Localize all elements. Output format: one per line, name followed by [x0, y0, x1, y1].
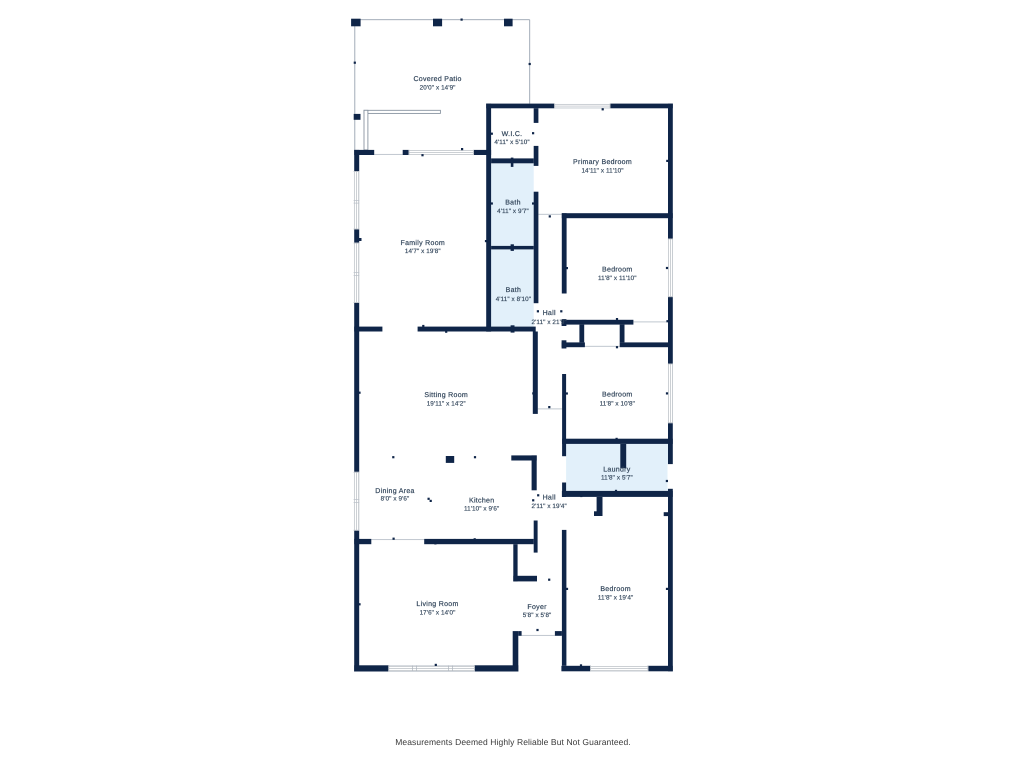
- svg-text:14'11" x 11'10": 14'11" x 11'10": [581, 167, 623, 174]
- svg-text:19'11" x 14'2": 19'11" x 14'2": [427, 401, 466, 408]
- svg-text:4'11" x 9'7": 4'11" x 9'7": [497, 208, 529, 215]
- svg-text:Laundry: Laundry: [603, 466, 631, 474]
- svg-text:5'8" x 5'8": 5'8" x 5'8": [523, 612, 552, 619]
- svg-text:4'11" x 8'10": 4'11" x 8'10": [496, 296, 531, 303]
- svg-text:17'6" x 14'0": 17'6" x 14'0": [420, 609, 456, 616]
- svg-text:Bath: Bath: [505, 199, 521, 207]
- svg-text:Bedroom: Bedroom: [602, 266, 633, 274]
- svg-text:Kitchen: Kitchen: [469, 496, 494, 504]
- svg-text:Bedroom: Bedroom: [600, 585, 631, 593]
- svg-text:Hall: Hall: [543, 309, 556, 317]
- svg-text:20'0" x 14'9": 20'0" x 14'9": [420, 84, 456, 91]
- svg-text:11'8" x 11'10": 11'8" x 11'10": [598, 275, 637, 282]
- svg-text:2'11" x 21'9": 2'11" x 21'9": [532, 319, 567, 326]
- svg-text:11'8" x 19'4": 11'8" x 19'4": [598, 595, 633, 602]
- svg-text:W.I.C.: W.I.C.: [502, 131, 523, 138]
- svg-text:11'8" x 10'8": 11'8" x 10'8": [600, 400, 635, 407]
- svg-text:2'11" x 19'4": 2'11" x 19'4": [532, 503, 567, 510]
- svg-text:Primary Bedroom: Primary Bedroom: [573, 158, 632, 166]
- svg-text:11'8" x 5'7": 11'8" x 5'7": [601, 475, 633, 482]
- svg-text:Living Room: Living Room: [416, 600, 458, 608]
- svg-text:Covered Patio: Covered Patio: [413, 75, 461, 83]
- svg-text:Bath: Bath: [506, 286, 522, 294]
- svg-text:Measurements Deemed Highly Rel: Measurements Deemed Highly Reliable But …: [395, 737, 631, 747]
- svg-text:Family Room: Family Room: [401, 239, 446, 247]
- svg-text:14'7" x 19'8": 14'7" x 19'8": [405, 248, 441, 255]
- svg-text:Bedroom: Bedroom: [602, 391, 633, 399]
- svg-text:Foyer: Foyer: [527, 604, 547, 611]
- svg-text:4'11" x 5'10": 4'11" x 5'10": [494, 139, 529, 146]
- svg-text:8'0" x 9'6": 8'0" x 9'6": [381, 496, 410, 503]
- svg-text:Hall: Hall: [543, 494, 556, 502]
- svg-text:11'10" x 9'6": 11'10" x 9'6": [464, 506, 499, 513]
- svg-text:Dining Area: Dining Area: [375, 487, 415, 495]
- svg-text:Sitting Room: Sitting Room: [424, 391, 468, 399]
